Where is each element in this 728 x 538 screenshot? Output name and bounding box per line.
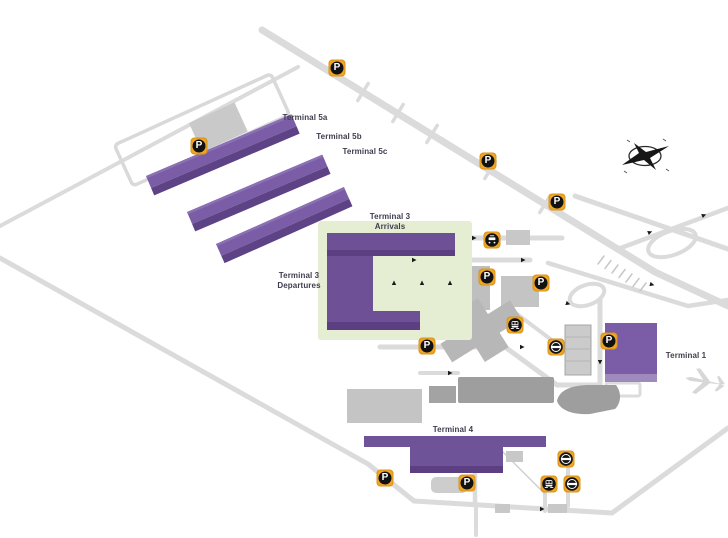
compass-rose-icon	[622, 139, 669, 173]
underground-station-icon[interactable]	[548, 339, 565, 356]
train-glyph	[541, 476, 558, 493]
parking-icon[interactable]: P	[459, 475, 476, 492]
underground-roundel-glyph	[548, 339, 565, 356]
parking-letter: P	[464, 478, 471, 488]
parking-disc: P	[460, 476, 474, 490]
parking-icon[interactable]: P	[191, 138, 208, 155]
parking-letter: P	[196, 141, 203, 151]
label-line: Terminal 3	[370, 212, 410, 222]
exit-road-bottom-right	[612, 428, 728, 513]
parking-icon[interactable]: P	[601, 333, 618, 350]
label-terminal-4: Terminal 4	[433, 425, 473, 435]
label-terminal-5c: Terminal 5c	[343, 147, 388, 157]
multi-storey-carpark	[565, 325, 591, 375]
parking-letter: P	[484, 272, 491, 282]
parking-disc: P	[378, 471, 392, 485]
label-terminal-5b: Terminal 5b	[316, 132, 361, 142]
parking-disc: P	[481, 154, 495, 168]
underground-station-icon[interactable]	[564, 476, 581, 493]
underground-roundel-glyph	[564, 476, 581, 493]
parking-disc: P	[420, 339, 434, 353]
parking-letter: P	[382, 473, 389, 483]
airplane-icon	[683, 366, 728, 399]
parking-letter: P	[554, 197, 561, 207]
underground-roundel-glyph	[558, 451, 575, 468]
parking-disc: P	[330, 61, 344, 75]
underground-station-icon[interactable]	[558, 451, 575, 468]
parking-letter: P	[334, 63, 341, 73]
parking-letter: P	[424, 341, 431, 351]
parking-icon[interactable]: P	[480, 153, 497, 170]
airport-terminal-map: Terminal 5a Terminal 5b Terminal 5c Term…	[0, 0, 728, 538]
label-line: Departures	[277, 281, 320, 291]
map-drawing	[0, 0, 728, 538]
parking-letter: P	[538, 278, 545, 288]
label-terminal-3-departures: Terminal 3 Departures	[277, 271, 320, 291]
bus-station-icon[interactable]	[484, 232, 501, 249]
parking-disc: P	[550, 195, 564, 209]
label-line: Arrivals	[370, 222, 410, 232]
parking-disc: P	[480, 270, 494, 284]
rail-station-icon[interactable]	[541, 476, 558, 493]
parking-letter: P	[485, 156, 492, 166]
parking-icon[interactable]: P	[549, 194, 566, 211]
parking-letter: P	[606, 336, 613, 346]
label-terminal-3-arrivals: Terminal 3 Arrivals	[370, 212, 410, 232]
rail-station-icon[interactable]	[507, 317, 524, 334]
parking-disc: P	[534, 276, 548, 290]
parking-icon[interactable]: P	[533, 275, 550, 292]
pier-boat-shape	[557, 385, 620, 414]
parking-icon[interactable]: P	[419, 338, 436, 355]
parking-icon[interactable]: P	[329, 60, 346, 77]
parking-disc: P	[602, 334, 616, 348]
bus-glyph	[484, 232, 501, 249]
parking-disc: P	[192, 139, 206, 153]
label-terminal-5a: Terminal 5a	[283, 113, 328, 123]
label-terminal-1: Terminal 1	[666, 351, 706, 361]
parking-icon[interactable]: P	[377, 470, 394, 487]
train-glyph	[507, 317, 524, 334]
parking-icon[interactable]: P	[479, 269, 496, 286]
label-line: Terminal 3	[277, 271, 320, 281]
